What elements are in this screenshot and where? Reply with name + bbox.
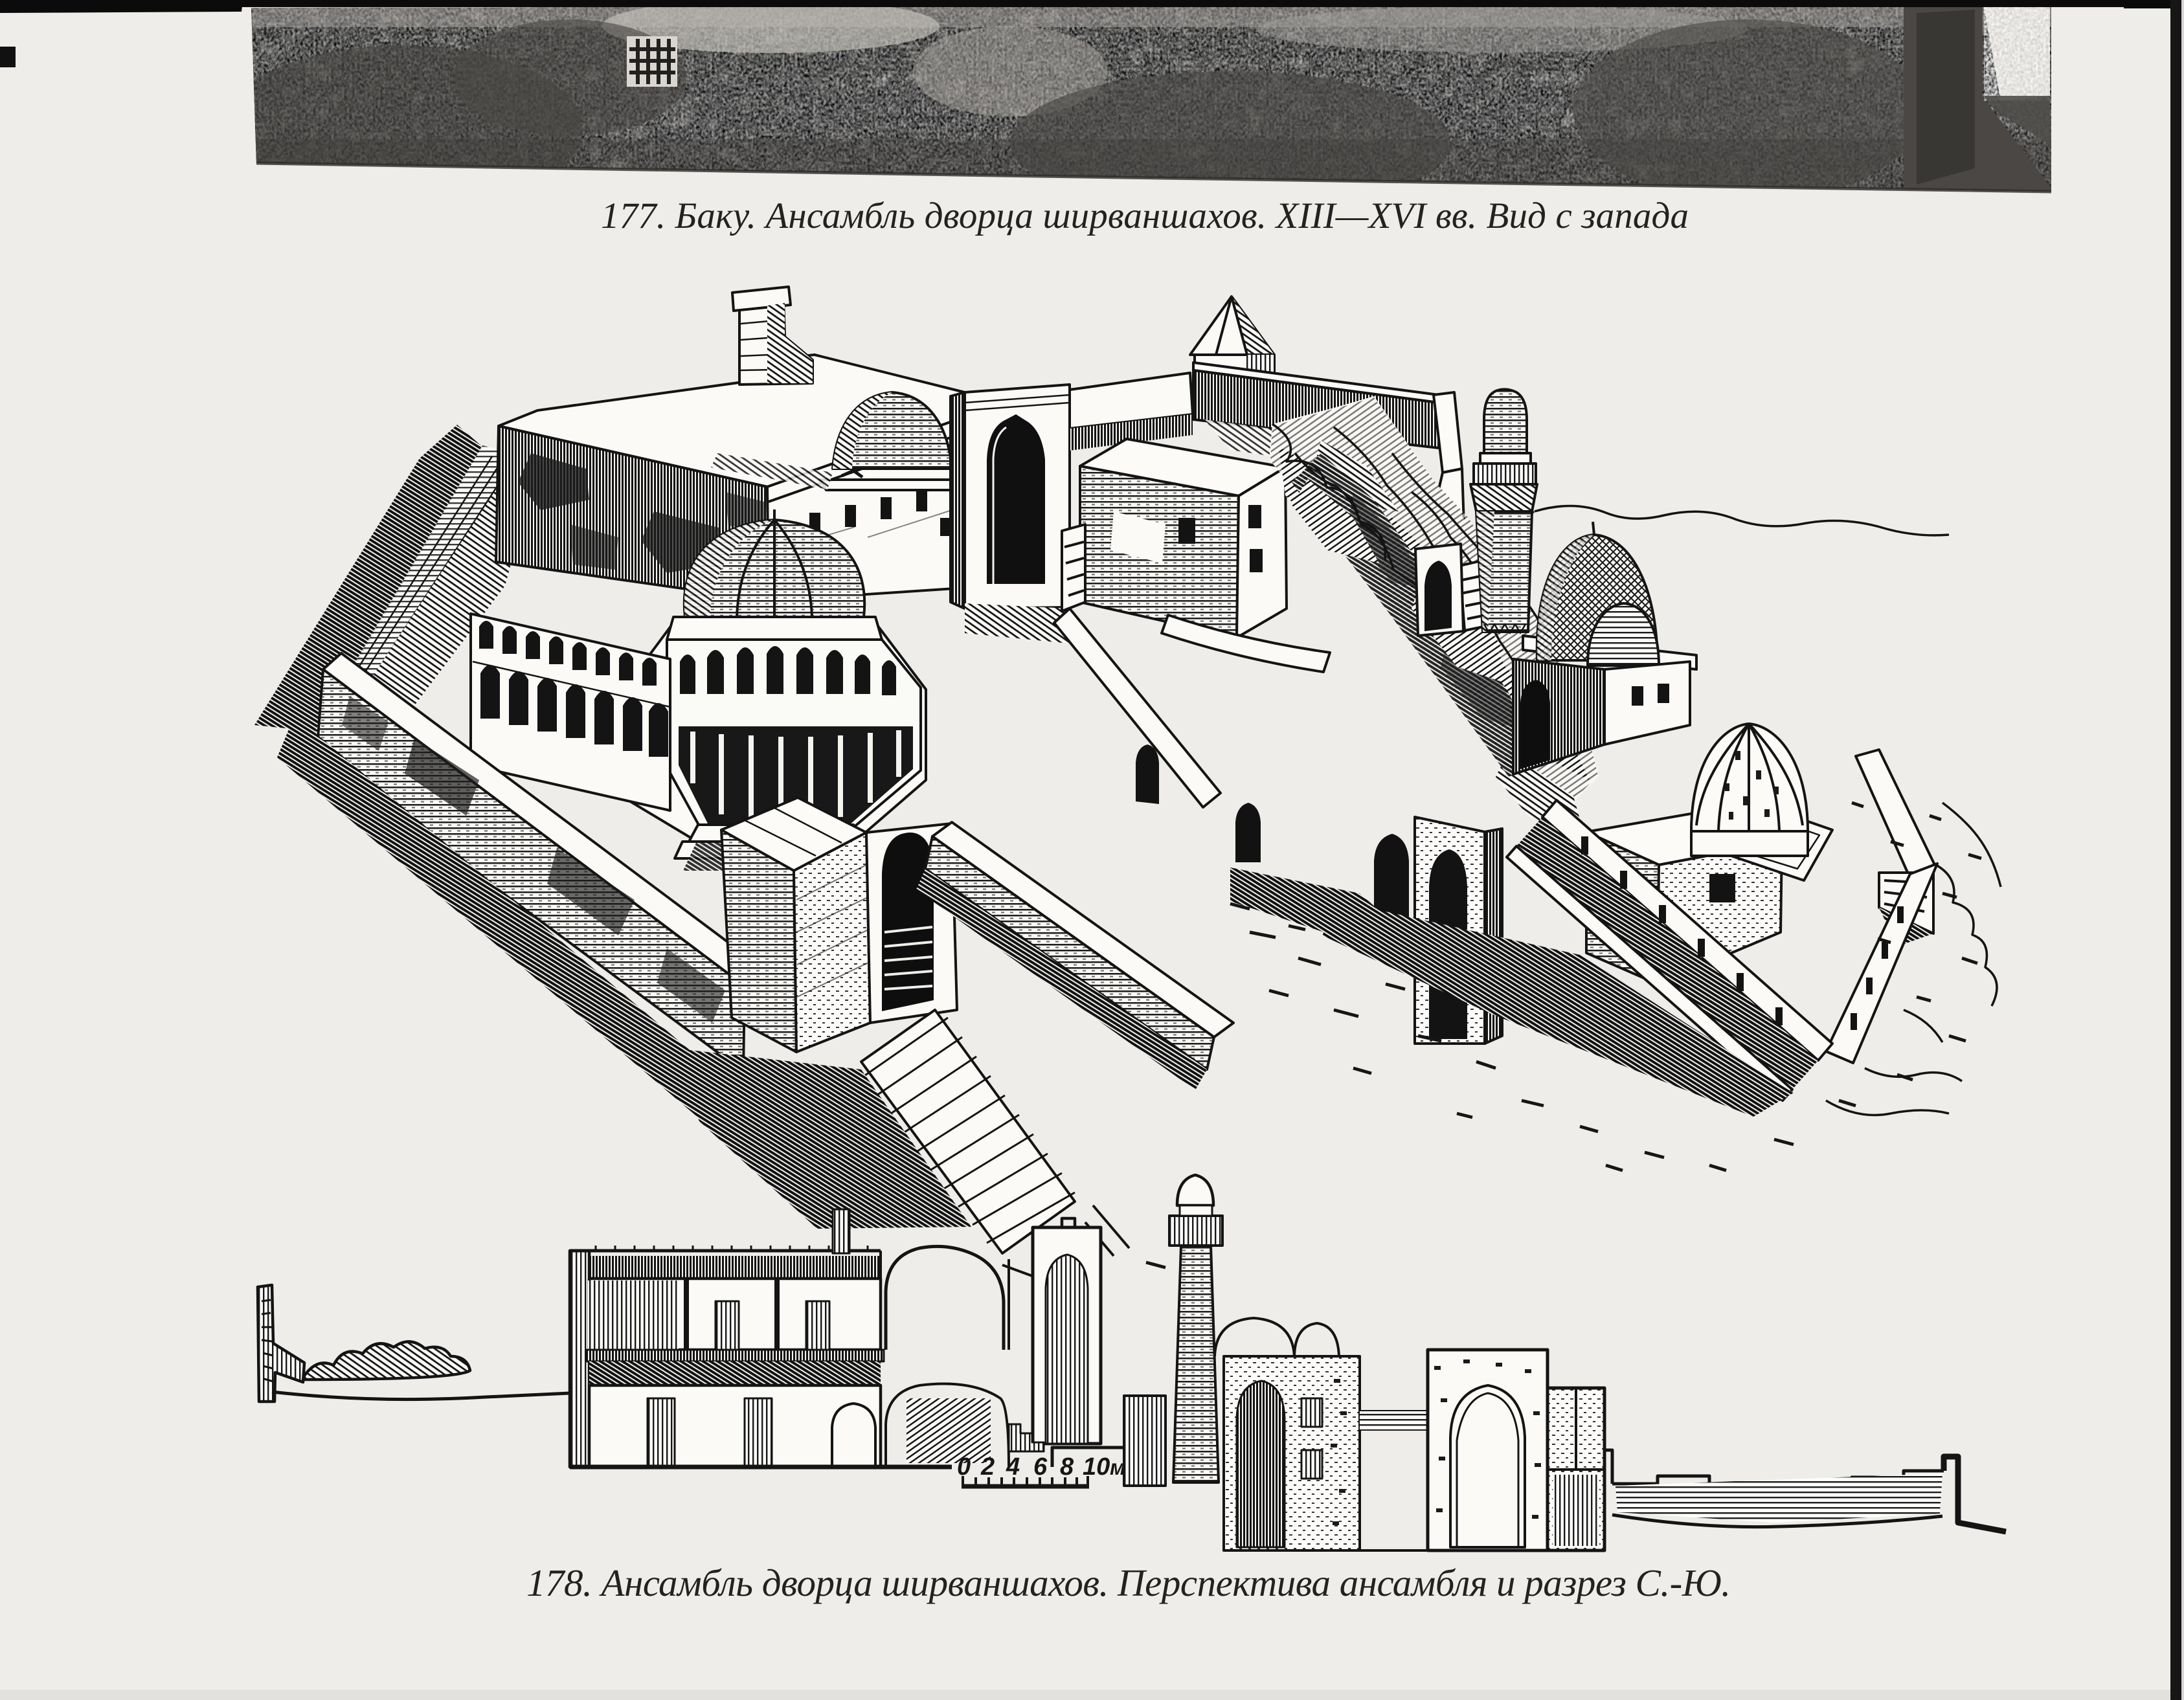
svg-text:2: 2 [980,1453,995,1481]
svg-text:8: 8 [1060,1453,1074,1481]
svg-text:178. Ансамбль дворца ширван: 178. Ансамбль дворца ширваншахов. Перспе… [526,1561,1731,1604]
svg-text:6: 6 [1033,1453,1048,1481]
svg-text:4: 4 [1006,1453,1020,1481]
svg-text:м: м [1110,1455,1125,1479]
svg-text:177. Баку. Ансамбль дворца: 177. Баку. Ансамбль дворца ширваншахов. … [601,196,1689,236]
